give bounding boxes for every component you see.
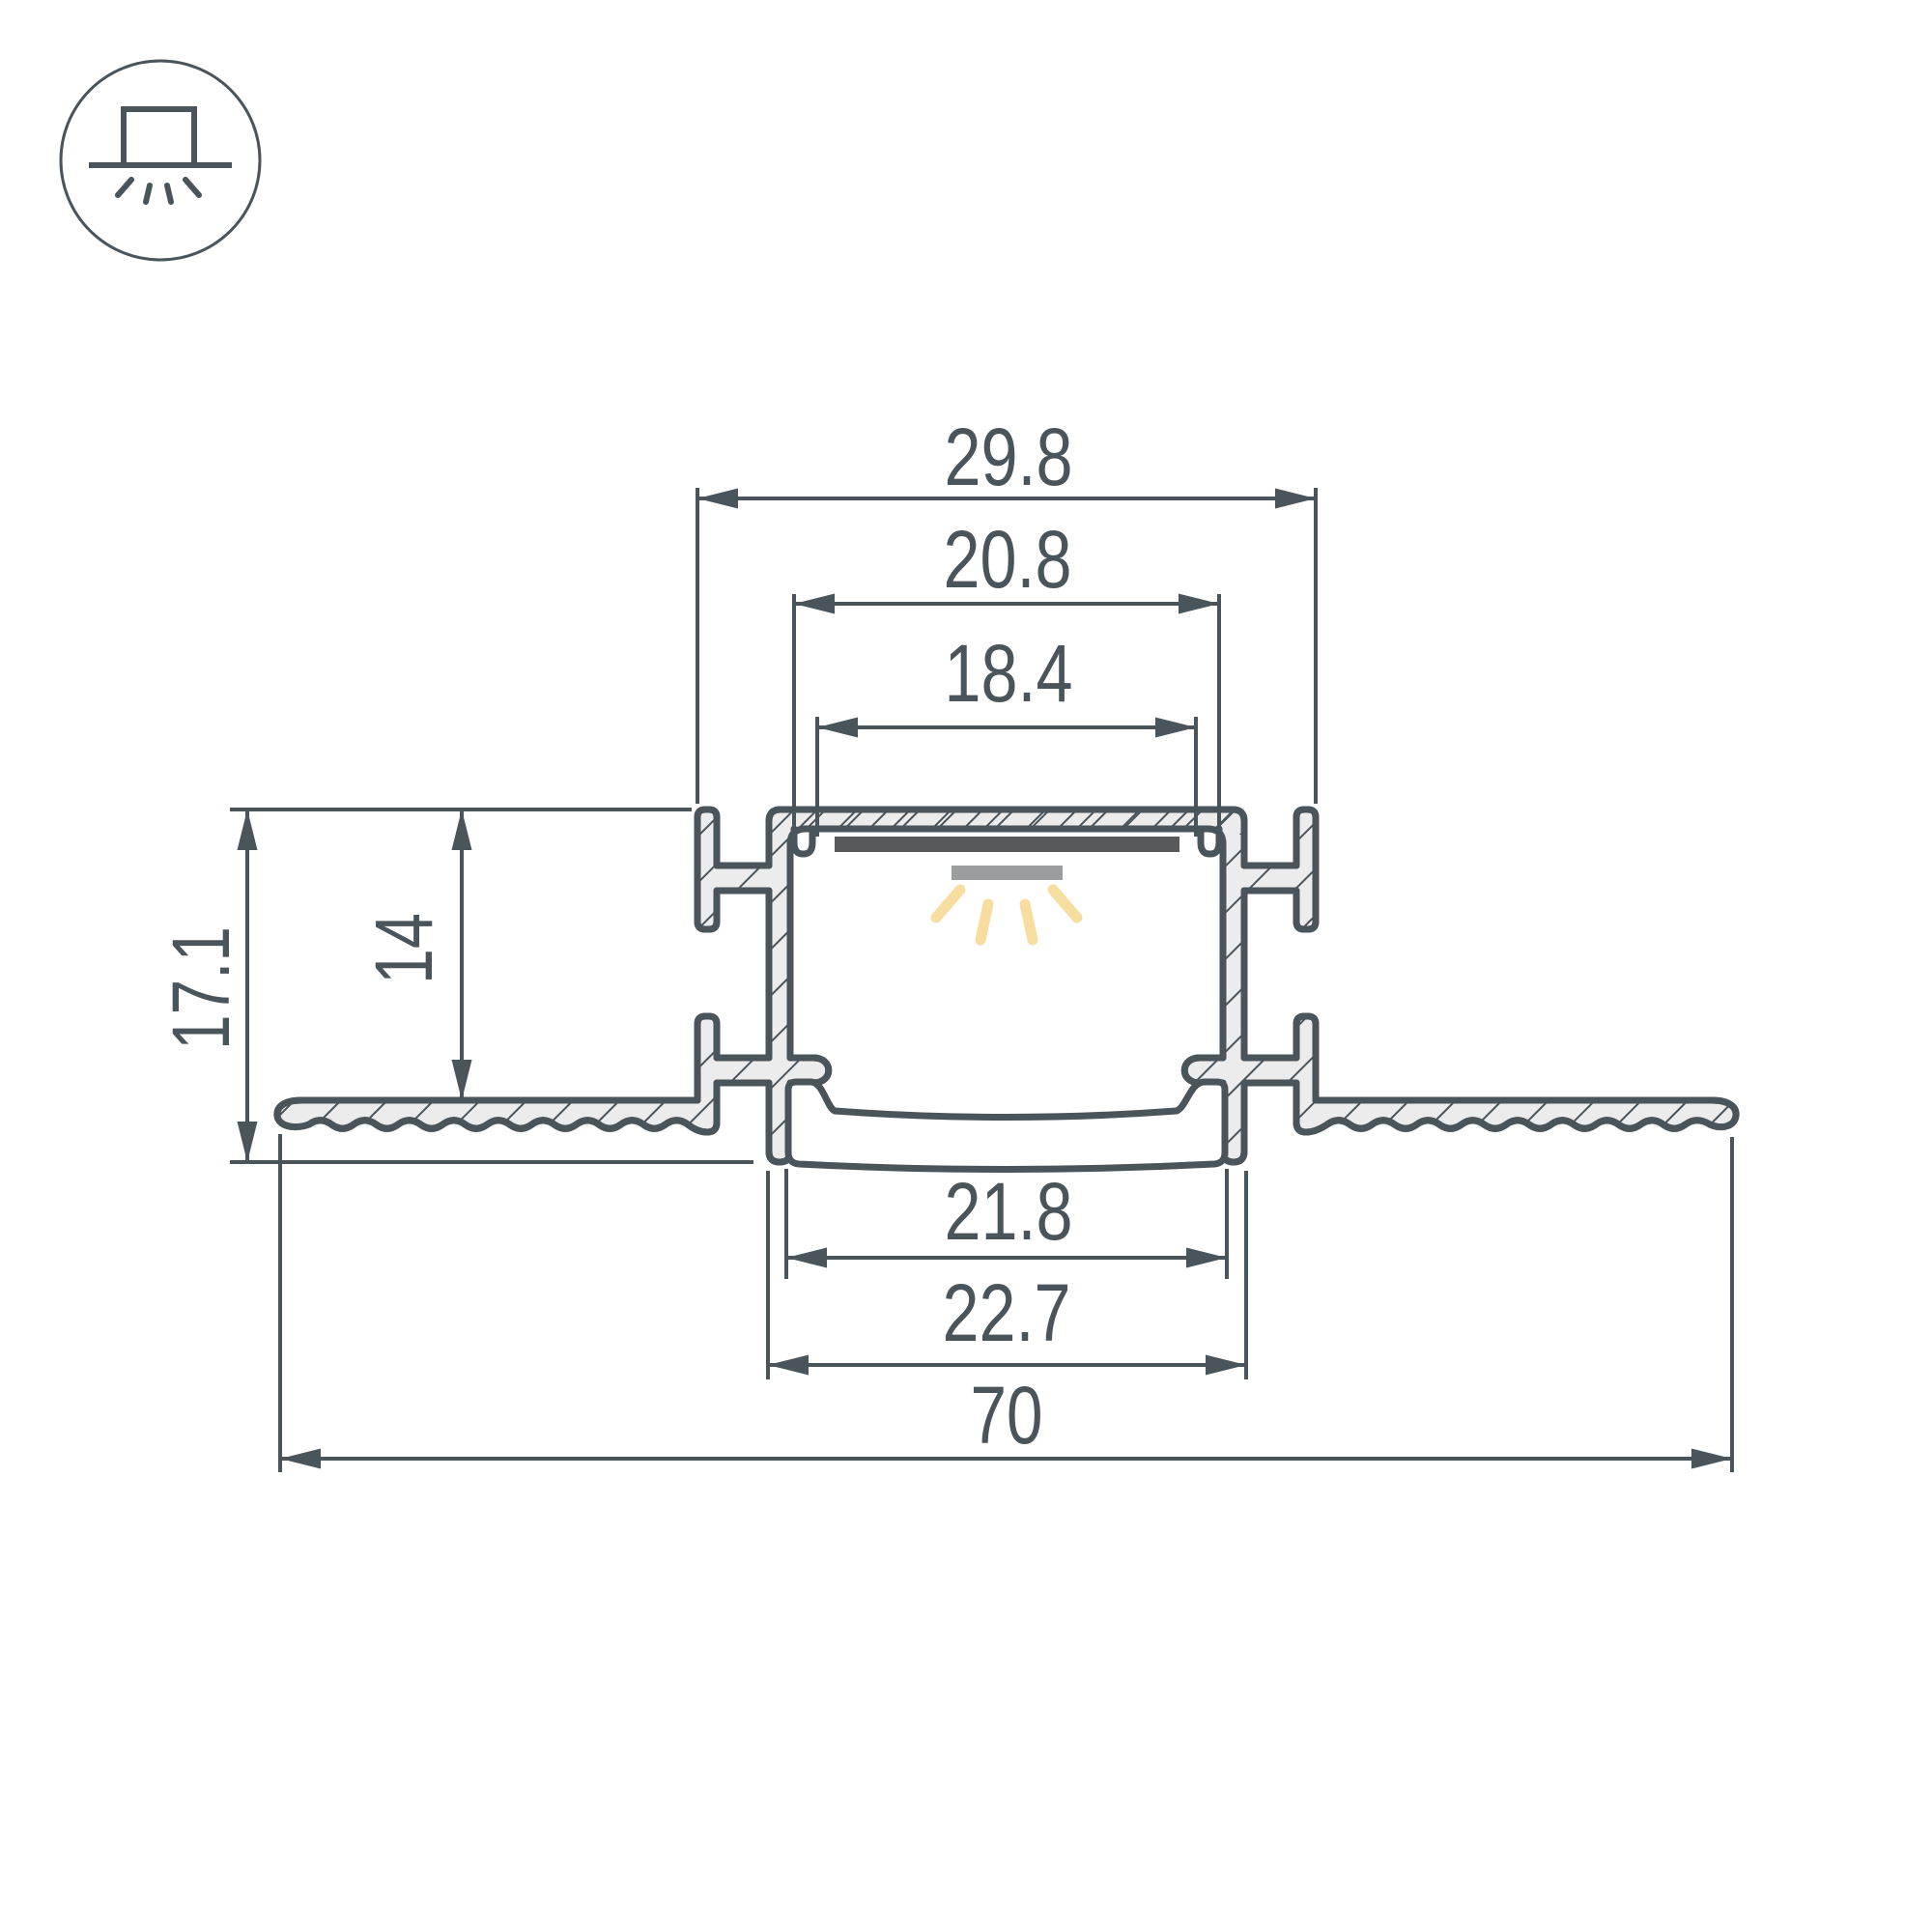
svg-text:18.4: 18.4 <box>945 628 1073 719</box>
svg-text:21.8: 21.8 <box>945 1166 1073 1257</box>
svg-text:17.1: 17.1 <box>156 926 246 1050</box>
svg-text:29.8: 29.8 <box>945 412 1073 502</box>
svg-text:22.7: 22.7 <box>943 1267 1071 1358</box>
svg-text:70: 70 <box>971 1370 1043 1461</box>
svg-text:14: 14 <box>358 913 449 984</box>
svg-text:20.8: 20.8 <box>944 514 1072 605</box>
